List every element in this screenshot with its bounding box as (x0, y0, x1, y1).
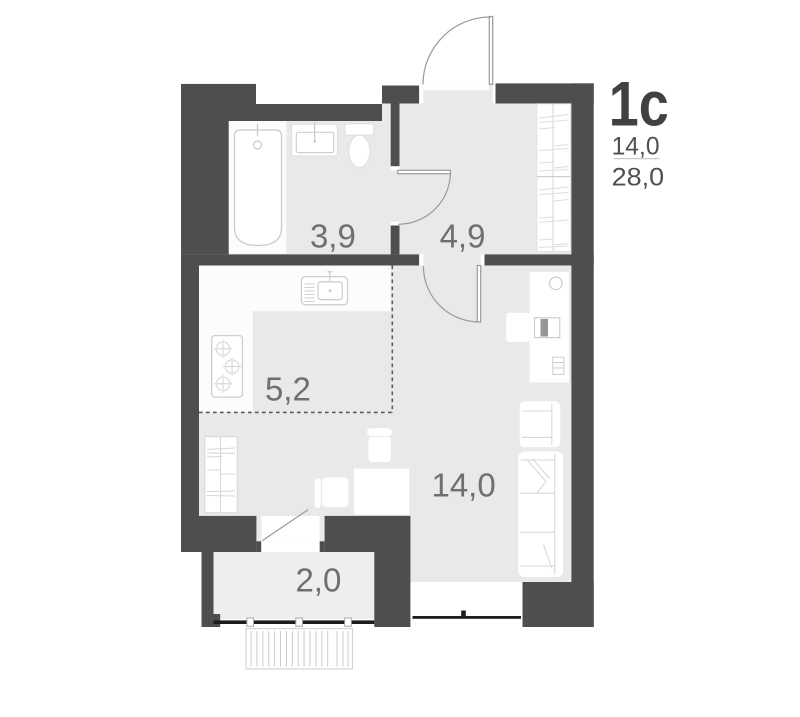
svg-text:5,2: 5,2 (265, 371, 311, 408)
svg-text:4,9: 4,9 (440, 218, 486, 255)
svg-text:28,0: 28,0 (612, 164, 665, 192)
svg-text:1с: 1с (609, 70, 669, 140)
svg-text:2,0: 2,0 (295, 562, 341, 599)
svg-text:3,9: 3,9 (310, 217, 356, 254)
svg-text:14,0: 14,0 (612, 133, 660, 161)
svg-text:14,0: 14,0 (431, 466, 495, 503)
